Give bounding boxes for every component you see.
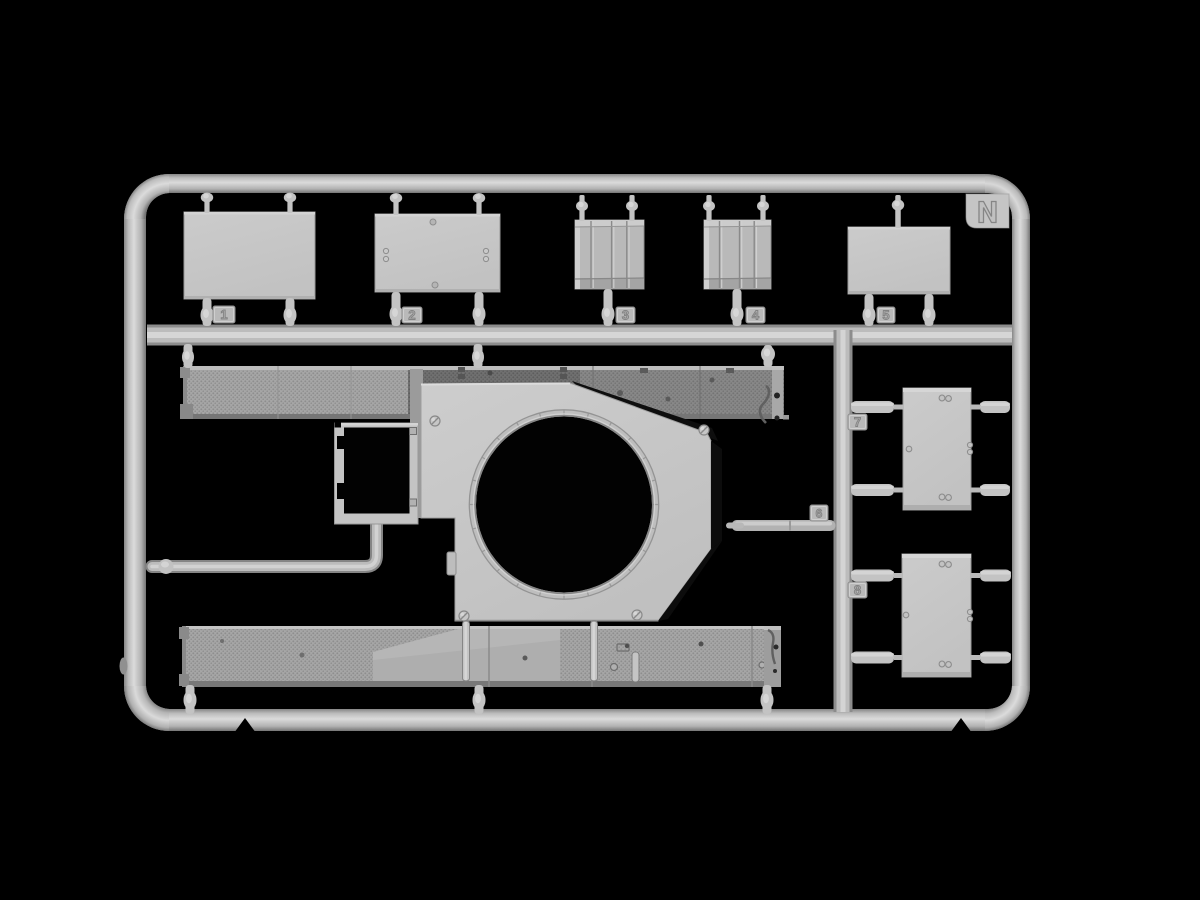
svg-text:4: 4 (752, 308, 760, 323)
svg-text:1: 1 (220, 307, 227, 322)
svg-text:2: 2 (408, 308, 415, 323)
svg-text:3: 3 (622, 308, 629, 323)
svg-text:6: 6 (816, 506, 823, 520)
svg-text:5: 5 (882, 308, 889, 323)
svg-text:8: 8 (854, 583, 861, 598)
svg-text:7: 7 (854, 415, 861, 430)
